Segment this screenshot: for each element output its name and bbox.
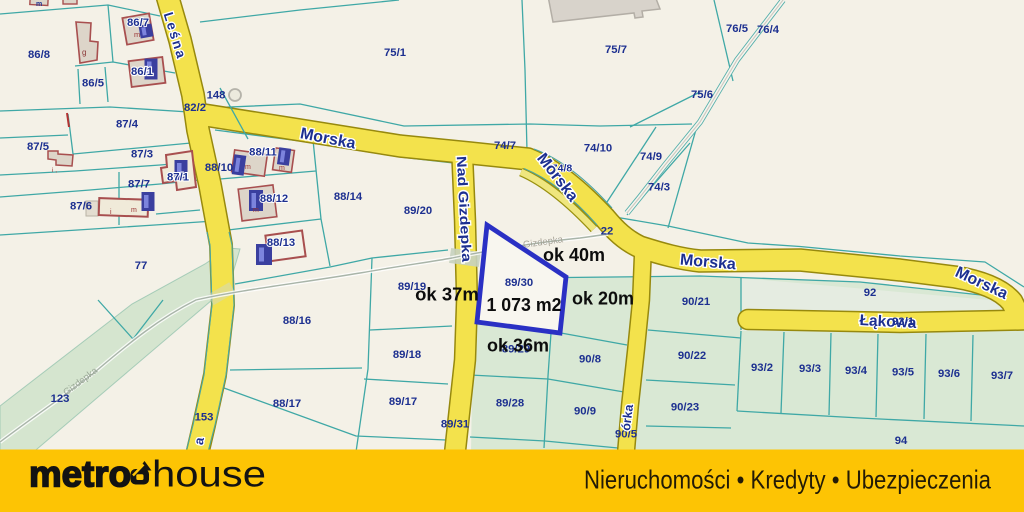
svg-text:93/7: 93/7 <box>991 370 1013 382</box>
svg-text:93/2: 93/2 <box>751 362 773 374</box>
svg-text:93/4: 93/4 <box>845 365 868 377</box>
svg-text:m: m <box>279 165 285 172</box>
svg-text:86/7: 86/7 <box>127 17 149 29</box>
svg-text:89/18: 89/18 <box>393 349 421 361</box>
svg-text:89/31: 89/31 <box>441 419 469 431</box>
svg-text:77: 77 <box>135 260 148 272</box>
svg-text:93/6: 93/6 <box>938 368 960 380</box>
svg-text:22: 22 <box>601 226 614 238</box>
svg-text:87/5: 87/5 <box>27 141 49 153</box>
svg-text:86/1: 86/1 <box>131 66 153 78</box>
svg-text:89/17: 89/17 <box>389 396 417 408</box>
svg-text:88/13: 88/13 <box>267 237 295 249</box>
svg-text:90/8: 90/8 <box>579 354 601 366</box>
svg-text:148: 148 <box>207 90 226 102</box>
svg-text:metro: metro <box>29 454 131 495</box>
svg-text:89/30: 89/30 <box>505 277 533 289</box>
svg-text:75/6: 75/6 <box>691 89 713 101</box>
svg-text:74/9: 74/9 <box>640 151 662 163</box>
svg-text:90/9: 90/9 <box>574 406 596 418</box>
svg-text:ok 20m: ok 20m <box>572 289 634 309</box>
svg-text:g: g <box>82 48 86 57</box>
svg-text:88/14: 88/14 <box>334 191 363 203</box>
svg-text:87/7: 87/7 <box>128 179 150 191</box>
svg-text:87/6: 87/6 <box>70 201 92 213</box>
svg-text:74/10: 74/10 <box>584 143 612 155</box>
svg-text:94: 94 <box>895 435 908 447</box>
svg-text:90/22: 90/22 <box>678 350 706 362</box>
svg-text:Nieruchomości • Kredyty • Ubez: Nieruchomości • Kredyty • Ubezpieczenia <box>584 465 991 495</box>
svg-text:ok 40m: ok 40m <box>543 245 605 265</box>
svg-text:92: 92 <box>864 287 877 299</box>
svg-text:88/17: 88/17 <box>273 398 301 410</box>
svg-text:93/1: 93/1 <box>892 316 914 328</box>
svg-text:88/10: 88/10 <box>205 162 233 174</box>
svg-text:87/4: 87/4 <box>116 119 139 131</box>
svg-text:88/16: 88/16 <box>283 315 311 327</box>
svg-text:m: m <box>245 164 251 171</box>
svg-text:153: 153 <box>195 412 214 424</box>
svg-text:m: m <box>36 1 42 8</box>
svg-text:76/4: 76/4 <box>757 24 780 36</box>
svg-text:m: m <box>253 207 259 214</box>
svg-text:86/5: 86/5 <box>82 78 104 90</box>
svg-text:m: m <box>134 30 140 39</box>
svg-text:93/3: 93/3 <box>799 363 821 375</box>
svg-text:89/20: 89/20 <box>404 205 432 217</box>
svg-text:74/7: 74/7 <box>494 140 516 152</box>
svg-text:87/1: 87/1 <box>167 172 189 184</box>
svg-text:82/2: 82/2 <box>184 102 206 114</box>
svg-text:90/23: 90/23 <box>671 402 699 414</box>
svg-text:87/3: 87/3 <box>131 149 153 161</box>
svg-text:76/5: 76/5 <box>726 23 748 35</box>
svg-text:1 073 m2: 1 073 m2 <box>487 295 562 315</box>
svg-text:89/28: 89/28 <box>496 398 524 410</box>
svg-text:house: house <box>152 454 266 495</box>
svg-text:88/12: 88/12 <box>260 193 288 205</box>
svg-text:75/1: 75/1 <box>384 47 406 59</box>
svg-text:i ,: i , <box>52 167 57 174</box>
svg-text:ok 36m: ok 36m <box>487 336 549 356</box>
svg-text:93/5: 93/5 <box>892 367 914 379</box>
svg-text:75/7: 75/7 <box>605 44 627 56</box>
svg-text:86/8: 86/8 <box>28 49 50 61</box>
svg-text:74/3: 74/3 <box>648 182 670 194</box>
svg-text:88/11: 88/11 <box>249 147 277 159</box>
svg-text:m: m <box>131 207 137 214</box>
svg-text:ok 37m: ok 37m <box>415 284 479 305</box>
svg-text:90/21: 90/21 <box>682 296 710 308</box>
